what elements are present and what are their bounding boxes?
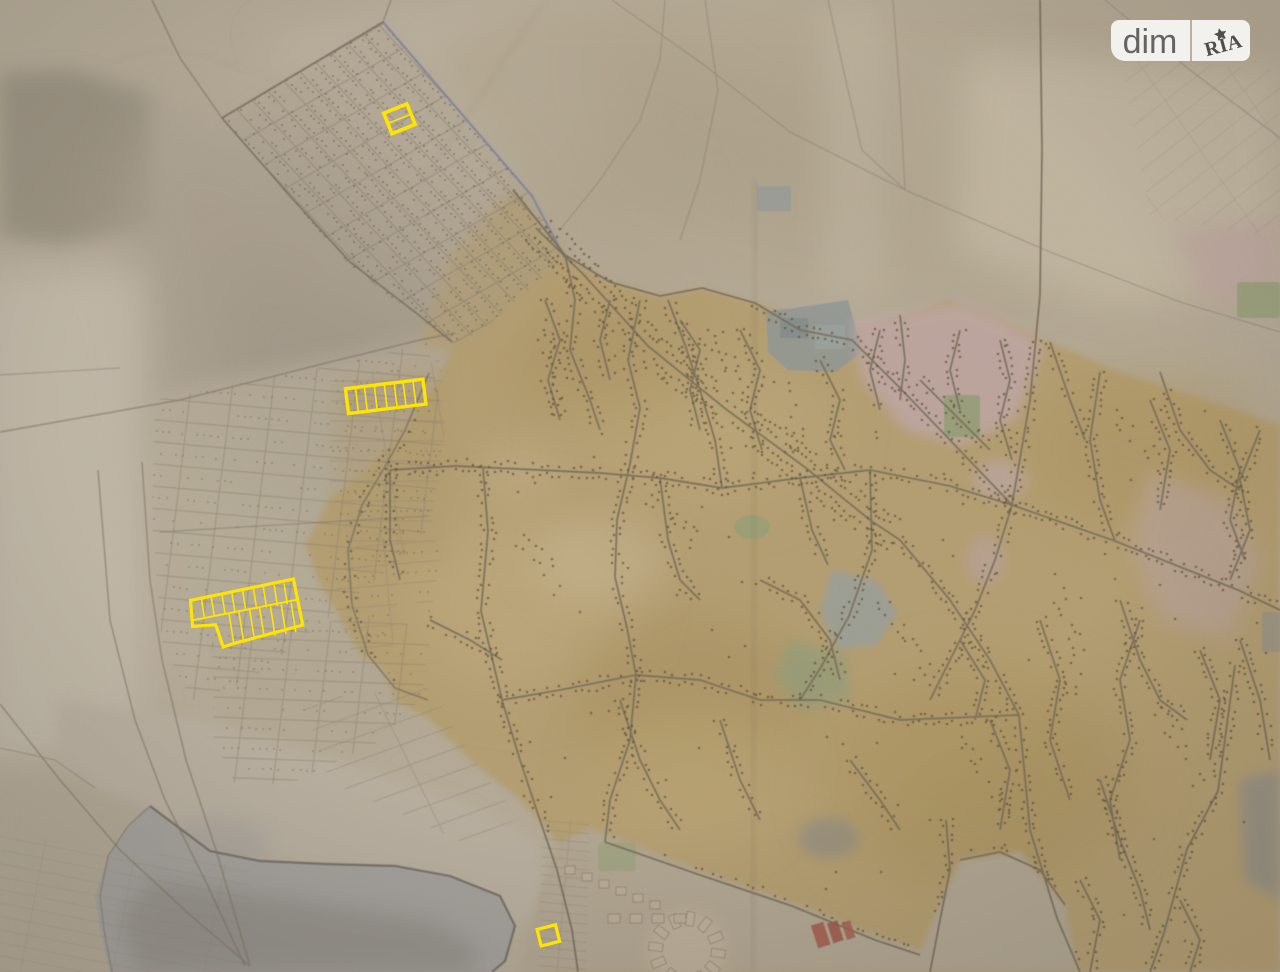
svg-text:dim: dim — [1123, 23, 1178, 61]
